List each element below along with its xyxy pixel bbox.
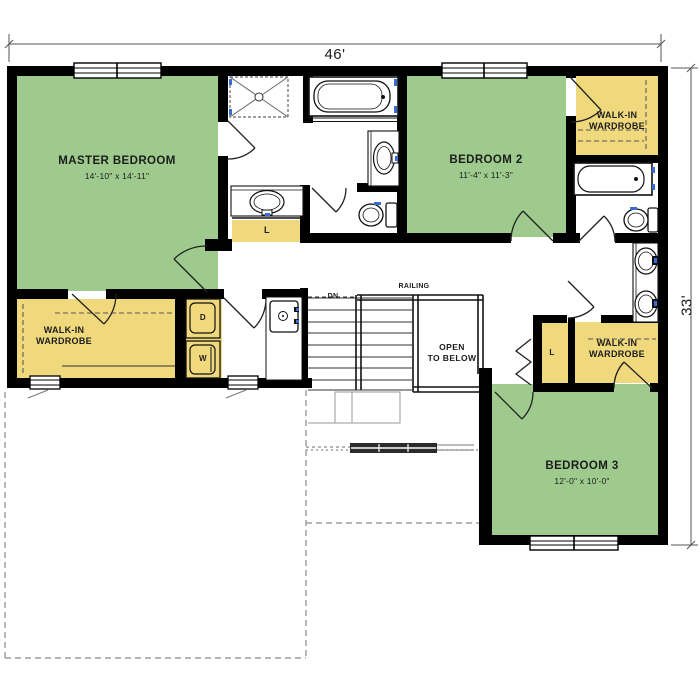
window xyxy=(74,63,161,78)
bedroom3-wardrobe-label: WALK-IN WARDROBE xyxy=(578,338,656,361)
width-dimension: 46' xyxy=(305,46,365,65)
bedroom2-wardrobe-label: WALK-IN WARDROBE xyxy=(577,110,657,133)
railing-label: RAILING xyxy=(384,283,444,292)
door-swing xyxy=(312,188,346,212)
open-to-below-label: OPEN TO BELOW xyxy=(412,342,492,363)
toilet xyxy=(359,202,397,227)
shower xyxy=(229,77,288,117)
sink xyxy=(231,186,303,216)
open-below-window-bar xyxy=(350,443,474,453)
laundry-sink xyxy=(266,297,302,380)
dryer-label: D xyxy=(193,313,213,323)
dn-label: DN xyxy=(324,293,342,302)
room-name: BEDROOM 2 xyxy=(416,153,556,167)
double-vanity-sinks xyxy=(633,243,658,322)
room-name: BEDROOM 3 xyxy=(512,459,652,473)
bedroom2-label: BEDROOM 2 11'-4" x 11'-3" xyxy=(416,153,556,181)
bifold-door xyxy=(516,339,531,385)
room-size: 12'-0" x 10'-0" xyxy=(512,476,652,487)
depth-dimension: 33' xyxy=(679,280,698,330)
bedroom3-label: BEDROOM 3 12'-0" x 10'-0" xyxy=(512,459,652,487)
stairs xyxy=(308,295,483,453)
linen-closet-hall-label: L xyxy=(544,348,560,358)
toilet xyxy=(624,207,658,232)
window xyxy=(530,536,618,550)
washer-label: W xyxy=(193,354,213,364)
room-size: 14'-10" x 14'-11" xyxy=(25,171,209,182)
door-swing xyxy=(228,121,255,159)
room-size: 11'-4" x 11'-3" xyxy=(416,170,556,181)
master-wardrobe-label: WALK-IN WARDROBE xyxy=(20,325,108,348)
door-swing xyxy=(224,298,266,328)
room-name: MASTER BEDROOM xyxy=(25,154,209,168)
master-bedroom-area xyxy=(17,76,218,291)
window xyxy=(28,376,60,398)
bathtub xyxy=(303,77,398,122)
window xyxy=(442,63,527,78)
door-swing xyxy=(568,281,594,318)
window xyxy=(226,376,258,398)
door-swing xyxy=(578,216,615,242)
master-bedroom-label: MASTER BEDROOM 14'-10" x 14'-11" xyxy=(25,154,209,182)
bathtub xyxy=(574,163,655,195)
floor-below-outline xyxy=(5,390,479,658)
stair-flight-below xyxy=(308,392,400,423)
linen-closet-label: L xyxy=(252,225,282,236)
floor-plan: MASTER BEDROOM 14'-10" x 14'-11" BEDROOM… xyxy=(0,0,700,700)
sink xyxy=(368,131,399,186)
